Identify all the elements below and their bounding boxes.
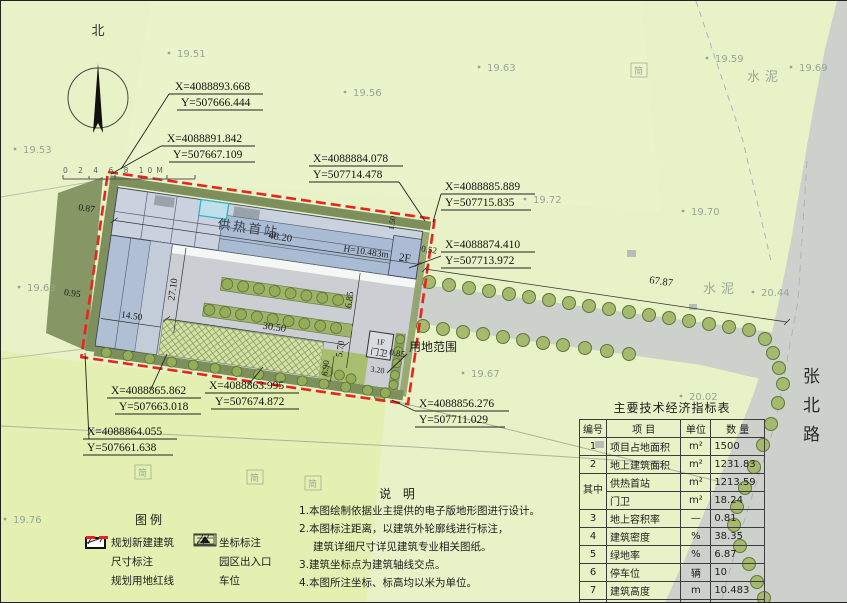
table-row: 门卫 m² 18.24 <box>580 492 765 510</box>
north-arrow: 北 <box>68 24 128 133</box>
coord-y: Y=507715.835 <box>445 197 515 209</box>
parcel-dashed-line <box>696 1 771 261</box>
cell-qty: 10.483 <box>711 582 765 600</box>
cell-no: 8 <box>580 600 607 603</box>
cell-unit: m <box>681 582 711 600</box>
legend-label: 尺寸标注 <box>111 554 153 569</box>
elevation: 19.72 <box>533 195 562 206</box>
coord-y: Y=507661.638 <box>87 442 157 454</box>
legend-item-dimension: 尺寸标注 <box>85 552 174 571</box>
cell-qty: 1213.59 <box>711 474 765 492</box>
shed-label: 简 <box>634 65 643 77</box>
coord-y: Y=507711.029 <box>419 414 488 426</box>
cell-no: 2 <box>580 456 607 474</box>
coord-x: X=4088865.862 <box>111 385 186 397</box>
legend-item-entrance: 园区出入口 <box>193 552 272 571</box>
legend-label: 车位 <box>219 573 240 588</box>
cement-label-2: 水泥 <box>703 282 739 297</box>
elevation: 19.63 <box>27 283 56 294</box>
dim-road-length: 67.87 <box>649 275 674 289</box>
elevation: 19.53 <box>23 145 52 156</box>
cell-item: 地上容积率 <box>607 510 681 528</box>
elevation: 19.51 <box>177 49 206 60</box>
coord-y: Y=507663.018 <box>119 401 189 413</box>
note-line: 建筑详细尺寸详见建筑专业相关图纸。 <box>299 538 534 556</box>
legend-item-red-line: 规划用地红线 <box>85 571 174 590</box>
coord-y: Y=507713.972 <box>445 255 515 267</box>
road-name-label: 张北路 <box>799 367 820 454</box>
cell-unit: % <box>681 546 711 564</box>
cell-item: 停车位 <box>607 564 681 582</box>
coord-x: X=4088885.889 <box>445 181 520 193</box>
elevation: 19.69 <box>799 63 828 74</box>
table-row: 8 建筑层数 层 2 <box>580 600 765 603</box>
coord-x: X=4088864.055 <box>87 426 162 438</box>
coord-y: Y=507666.444 <box>181 97 251 109</box>
cell-no: 3 <box>580 510 607 528</box>
north-label: 北 <box>91 24 104 39</box>
cell-qty: 1231.83 <box>711 456 765 474</box>
elevation: 19.59 <box>715 54 744 65</box>
elevation: 20.44 <box>761 288 790 299</box>
coord-x: X=4088863.995 <box>209 380 284 392</box>
shed-label: 简 <box>138 467 147 479</box>
land-scope-label: 用地范围 <box>409 340 457 354</box>
cell-qty: 6.87 <box>711 546 765 564</box>
legend-item-parking: 车位 <box>193 571 272 590</box>
spec-table: 编号 项 目 单位 数 量 1 项目占地面积 m² 1500 2 地上建筑面积 … <box>579 419 765 603</box>
cell-no: 4 <box>580 528 607 546</box>
cell-no: 5 <box>580 546 607 564</box>
cell-qty: 2 <box>711 600 765 603</box>
table-row: 6 停车位 辆 10 <box>580 564 765 582</box>
spec-table-title: 主要技术经济指标表 <box>579 399 765 416</box>
elevation: 19.63 <box>487 63 516 74</box>
coord-y: Y=507667.109 <box>173 149 243 161</box>
coord-x: X=4088856.276 <box>419 398 494 410</box>
table-row: 1 项目占地面积 m² 1500 <box>580 438 765 456</box>
cyan-skylight <box>199 200 229 220</box>
cell-no: 6 <box>580 564 607 582</box>
cell-no-qizhong: 其中 <box>580 474 607 510</box>
table-row: 4 建筑密度 % 38.35 <box>580 528 765 546</box>
cell-unit: % <box>681 528 711 546</box>
note-line: 1.本图绘制依据业主提供的电子版地形图进行设计。 <box>299 502 534 520</box>
spec-table-block: 主要技术经济指标表 编号 项 目 单位 数 量 1 项目占地面积 m² 1500… <box>579 399 765 603</box>
col-header-no: 编号 <box>580 420 607 438</box>
elevation: 19.70 <box>691 207 720 218</box>
cell-unit: 层 <box>681 600 711 603</box>
coord-y: Y=507714.478 <box>313 169 383 181</box>
cell-qty: 0.81 <box>711 510 765 528</box>
coord-x: X=4088891.842 <box>167 133 242 145</box>
coord-y: Y=507674.872 <box>215 396 285 408</box>
legend-title: 图例 <box>85 511 215 528</box>
cell-unit: m² <box>681 492 711 510</box>
legend-label: 坐标标注 <box>219 535 261 550</box>
note-line: 2.本图标注距离，以建筑外轮廓线进行标注， <box>299 520 534 538</box>
cell-unit: 辆 <box>681 564 711 582</box>
cell-qty: 1500 <box>711 438 765 456</box>
elevation: 19.56 <box>353 88 382 99</box>
legend-label: 规划新建建筑 <box>111 535 174 550</box>
cell-unit: m² <box>681 474 711 492</box>
cell-item: 供热首站 <box>607 474 681 492</box>
table-row: 7 建筑高度 m 10.483 <box>580 582 765 600</box>
col-header-qty: 数 量 <box>711 420 765 438</box>
scale-label: 0 2 4 6 8 10M <box>63 166 167 175</box>
cell-qty: 18.24 <box>711 492 765 510</box>
cell-item: 建筑层数 <box>607 600 681 603</box>
coord-callout-9: X=4088856.276 Y=507711.029 <box>392 398 509 427</box>
notes-title: 说 明 <box>339 485 459 502</box>
note-line: 4.本图所注坐标、标高均以米为单位。 <box>299 574 534 592</box>
cell-item: 门卫 <box>607 492 681 510</box>
table-header-row: 编号 项 目 单位 数 量 <box>580 420 765 438</box>
cement-label-1: 水泥 <box>747 70 783 85</box>
cell-item: 建筑高度 <box>607 582 681 600</box>
table-row: 5 绿地率 % 6.87 <box>580 546 765 564</box>
cell-item: 项目占地面积 <box>607 438 681 456</box>
col-header-item: 项 目 <box>607 420 681 438</box>
table-row: 2 地上建筑面积 m² 1231.83 <box>580 456 765 474</box>
cell-item: 地上建筑面积 <box>607 456 681 474</box>
site-plan-canvas: 供热首站 48.20 H=10.483m 2F 30.50 27.10 14.5… <box>0 0 847 603</box>
elevation: 19.67 <box>471 369 500 380</box>
building-floor-label: 2F <box>398 251 411 265</box>
coord-x: X=4088893.668 <box>175 81 250 93</box>
cell-no: 7 <box>580 582 607 600</box>
coord-x: X=4088884.078 <box>313 153 388 165</box>
legend-block: 图例 规划新建建筑 尺寸标注 规划用地红线 坐标标注 <box>85 511 315 534</box>
note-line: 3.建筑坐标点为建筑轴线交点。 <box>299 556 534 574</box>
cell-item: 绿地率 <box>607 546 681 564</box>
coord-x: X=4088874.410 <box>445 239 520 251</box>
table-row: 3 地上容积率 — 0.81 <box>580 510 765 528</box>
cell-no: 1 <box>580 438 607 456</box>
cell-qty: 38.35 <box>711 528 765 546</box>
table-row: 其中 供热首站 m² 1213.59 <box>580 474 765 492</box>
cell-unit: m² <box>681 438 711 456</box>
cell-qty: 10 <box>711 564 765 582</box>
elevation: 19.76 <box>13 515 42 526</box>
cell-item: 建筑密度 <box>607 528 681 546</box>
legend-label: 规划用地红线 <box>111 573 174 588</box>
notes-block: 说 明 1.本图绘制依据业主提供的电子版地形图进行设计。 2.本图标注距离，以建… <box>299 485 534 592</box>
col-header-unit: 单位 <box>681 420 711 438</box>
cell-unit: — <box>681 510 711 528</box>
legend-label: 园区出入口 <box>219 554 272 569</box>
cell-unit: m² <box>681 456 711 474</box>
shed-label: 简 <box>250 472 259 484</box>
